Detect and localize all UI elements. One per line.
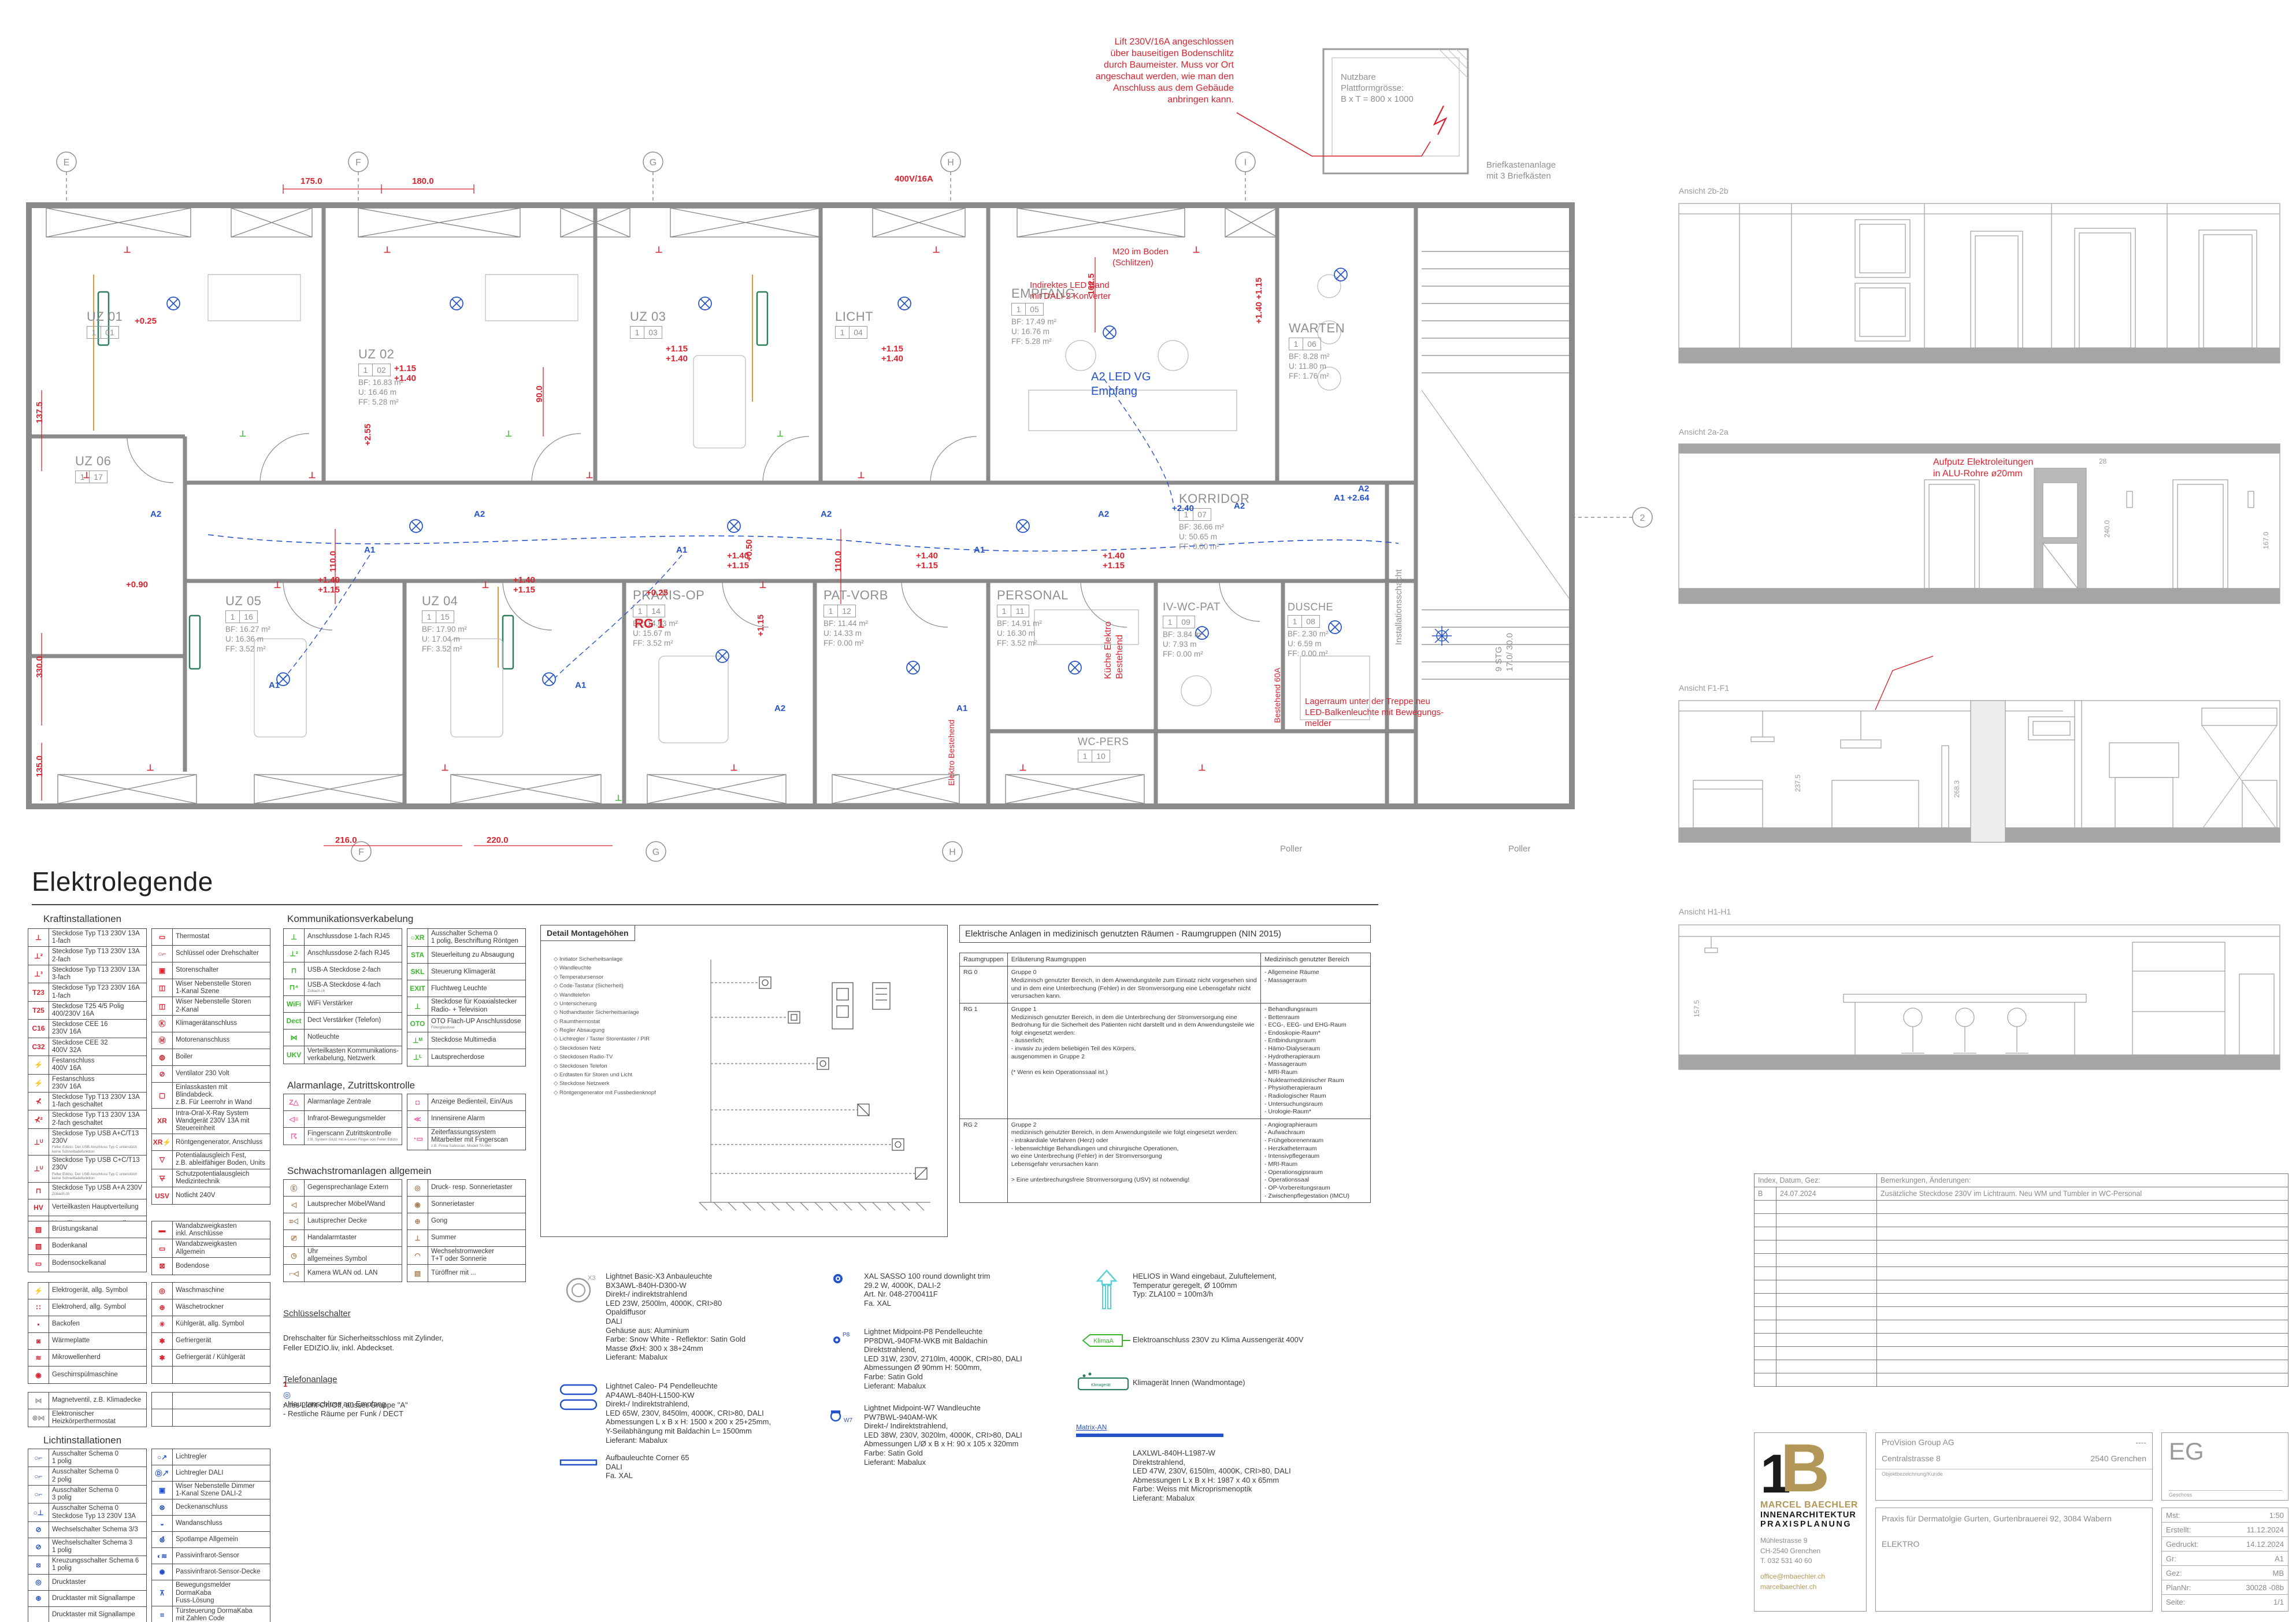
- client-dash: ----: [2135, 1438, 2146, 1447]
- room-label-pat-vorb: PAT-VORB 112 BF: 11.44 m² U: 14.33 m FF:…: [824, 588, 888, 649]
- note-a2-led-vg: A2 LED VG Empfang: [1091, 370, 1151, 399]
- montage-item: ◇ Steckdosen Netz: [554, 1044, 687, 1053]
- symbol-icon: ∷: [28, 1299, 49, 1316]
- symbol-icon: ✳: [152, 1316, 173, 1332]
- index-table: Index, Datum, Gez: Bemerkungen, Änderung…: [1754, 1173, 2288, 1387]
- elevation-label: Ansicht 2a-2a: [1679, 427, 1729, 436]
- plan-pin: +2.40: [1172, 503, 1194, 513]
- legend-row: ⚡Festanschluss 230V 16A: [28, 1075, 146, 1093]
- symbol-icon: ○⌐: [28, 1486, 49, 1503]
- svg-text:⊥: ⊥: [441, 763, 448, 773]
- svg-text:⊥: ⊥: [308, 471, 316, 480]
- room-label-uz03: UZ 03 103: [630, 309, 666, 340]
- legend-row: ⌗◁Lautsprecher Decke: [284, 1213, 402, 1230]
- plan-pin: 137.5: [35, 402, 44, 424]
- plan-pin: Poller: [1280, 844, 1302, 854]
- elevation-f1: [1679, 656, 2280, 842]
- legend-row: ⊥Steckdose Typ T13 230V 13A 1-fach: [28, 929, 146, 947]
- symbol-icon: ◘: [407, 1094, 428, 1110]
- legend-row: ⊗⋈Elektronischer Heizkörperthermostat: [28, 1409, 146, 1427]
- symbol-icon: C32: [28, 1038, 49, 1056]
- legend-row: ⓂMotorenanschluss: [152, 1032, 270, 1049]
- legend-table-alarm-1: Z△Alarmanlage Zentrale◁≡Infrarot-Bewegun…: [283, 1094, 402, 1145]
- symbol-icon: Ⓔ: [284, 1180, 305, 1196]
- legend-row: ◉Geschirrspülmaschine: [28, 1367, 146, 1383]
- symbol-icon: ◫: [152, 997, 173, 1014]
- elevation-2b: [1679, 203, 2280, 363]
- sasso-icon: [831, 1272, 848, 1289]
- symbol-icon: ⊥³: [28, 965, 49, 983]
- legend-row: ▪Backofen: [28, 1316, 146, 1333]
- elevation-h1: [1679, 925, 2280, 1069]
- legend-row: ◐≋Passivinfrarot-Sensor: [152, 1548, 270, 1564]
- legend-row: ⒺGegensprechanlage Extern: [284, 1180, 402, 1197]
- svg-text:⊥: ⊥: [585, 471, 593, 480]
- symbol-icon: ▧: [28, 1238, 49, 1254]
- legend-row: ✳Kühlgerät, allg. Symbol: [152, 1316, 270, 1333]
- legend-row: ⋈Notleuchte: [284, 1030, 402, 1046]
- svg-text:⊥: ⊥: [655, 245, 662, 255]
- symbol-icon: ◫: [152, 979, 173, 997]
- note-bestehend-60a: Bestehend 60A: [1273, 668, 1283, 723]
- architect-address: Mühlestrasse 9 CH-2540 Grenchen T. 032 5…: [1760, 1536, 1860, 1566]
- client-name: ProVision Group AG: [1882, 1438, 1954, 1447]
- symbol-icon: ⊥ᵁ: [28, 1156, 49, 1182]
- svg-text:⊥: ⊥: [777, 429, 784, 438]
- legend-row: C32Steckdose CEE 32 400V 32A: [28, 1038, 146, 1056]
- matrix-an-tag: Matrix-AN: [1076, 1423, 1223, 1437]
- symbol-icon: ◉: [28, 1367, 49, 1383]
- legend-row: [152, 1367, 270, 1383]
- symbol-icon: ▬: [152, 1221, 173, 1239]
- plan-pin: +1.40 +1.15: [1103, 551, 1125, 571]
- plan-pin: +2.55: [363, 424, 373, 446]
- legend-table-geraete-1: ⚡Elektrogerät, allg. Symbol∷Elektroherd,…: [28, 1282, 147, 1384]
- plan-pin: 175.0: [301, 176, 322, 186]
- product-basic-x3: Lightnet Basic-X3 Anbauleuchte BX3AWL-84…: [606, 1272, 834, 1362]
- klimageraet-icon: Klimagerät: [1076, 1371, 1131, 1394]
- note-rg1: RG 1: [635, 616, 664, 632]
- plan-pin: A2: [1098, 509, 1109, 519]
- grid-bubbles: [57, 152, 1652, 861]
- legend-row: ⊠Bodendose: [152, 1258, 270, 1275]
- symbol-icon: ▪: [28, 1316, 49, 1332]
- legend-row: ◎Drucktaster: [28, 1575, 146, 1591]
- montage-item: ◇ Erdtasten für Storen und Licht: [554, 1071, 687, 1079]
- symbol-icon: ▣: [152, 962, 173, 979]
- floor-caption: Geschoss: [2169, 1490, 2282, 1498]
- symbol-icon: ◠: [407, 1247, 428, 1264]
- legend-row: ⊥³Steckdose Typ T13 230V 13A 3-fach: [28, 965, 146, 983]
- plan-pin: +1.15 +1.40: [394, 364, 416, 384]
- svg-text:2: 2: [1640, 513, 1645, 523]
- legend-table-licht-2: ○↗LichtreglerⒹ↗Lichtregler DALI▣Wiser Ne…: [151, 1449, 270, 1622]
- svg-text:167.0: 167.0: [2262, 532, 2270, 549]
- svg-text:⊥: ⊥: [1198, 763, 1206, 773]
- room-label-warten: WARTEN 106 BF: 8.28 m² U: 11.80 m FF: 1.…: [1289, 321, 1345, 382]
- symbol-icon: ○⊥: [28, 1504, 49, 1521]
- legend-row: UKVVerteilkasten Kommunikations- verkabe…: [284, 1046, 402, 1064]
- legend-row: ⊘Wechselschalter Schema 3 1 polig: [28, 1538, 146, 1556]
- plan-pin: Poller: [1508, 844, 1530, 854]
- index-row: [1755, 1201, 2288, 1214]
- symbol-icon: ⋈: [284, 1030, 305, 1046]
- plan-pin: +1.15 +1.40: [881, 344, 903, 364]
- symbol-icon: ⎚: [284, 1230, 305, 1246]
- legend-row: HVVerteilkasten Hauptverteilung: [28, 1199, 146, 1216]
- stairs: [1422, 251, 1569, 679]
- legend-row: Ⓓ↗Lichtregler DALI: [152, 1465, 270, 1482]
- symbol-icon: ✺: [152, 1564, 173, 1580]
- symbol-icon: T25: [28, 1002, 49, 1019]
- legend-row: ⊓Steckdose Typ USB A+A 230VZübach.ch: [28, 1183, 146, 1199]
- plan-pin: A2: [774, 703, 785, 713]
- symbol-icon: HV: [28, 1199, 49, 1216]
- svg-text:⊥: ⊥: [273, 580, 281, 590]
- legend-row: ▭Wandabzweigkasten Allgemein: [152, 1239, 270, 1257]
- floor-box: EG Geschoss: [2161, 1432, 2288, 1501]
- legend-row: [152, 1393, 270, 1409]
- svg-text:F: F: [355, 158, 361, 168]
- project-box: Praxis für Dermatolgie Gurten, Gurtenbra…: [1875, 1508, 2153, 1612]
- symbol-icon: ⊘: [28, 1538, 49, 1556]
- symbol-icon: ⊘: [28, 1522, 49, 1538]
- legend-row: ☈Fingerscann Zutrittskontrollez.B. Syste…: [284, 1128, 402, 1145]
- legend-table-komm-1: ⊥Anschlussdose 1-fach RJ45⊥²Anschlussdos…: [283, 928, 402, 1064]
- symbol-icon: ◍: [152, 1049, 173, 1065]
- symbol-icon: USV: [152, 1187, 173, 1204]
- symbol-icon: Ⓜ: [152, 1032, 173, 1049]
- plan-pin: +0.25: [135, 316, 157, 326]
- legend-row: ⊥ᴹSteckdose Multimedia: [407, 1032, 525, 1049]
- legend-row: ▽Potentialausgleich Fest, z.B. ableitfäh…: [152, 1151, 270, 1169]
- legend-row: ◒Wandanschluss: [152, 1516, 270, 1532]
- plan-pin: A2: [1358, 484, 1369, 494]
- legend-row: ○⌐Ausschalter Schema 0 1 polig: [28, 1449, 146, 1467]
- rg-row: RG 1Gruppe 1 Medizinisch genutzter Berei…: [960, 1003, 1371, 1119]
- index-header: Index, Datum, Gez:: [1755, 1174, 1877, 1187]
- legend-table-kraft-2: ▭Thermostat○⌐Schlüssel oder Drehschalter…: [151, 928, 270, 1205]
- legend-row: ⦻Kreuzungsschalter Schema 6 1 polig: [28, 1556, 146, 1574]
- legend-row: ◠Wechselstromwecker T+T oder Sonnerie: [407, 1247, 525, 1265]
- montage-item: ◇ Temperatursensor: [554, 973, 687, 982]
- legend-row: ▽̶Schutzpotentialausgleich Medizintechni…: [152, 1169, 270, 1187]
- symbol-icon: WiFi: [284, 996, 305, 1012]
- klima-a-tag-icon: KlimaA: [1082, 1333, 1131, 1348]
- client-caption: Objektbezeichnung/Kunde: [1876, 1469, 2152, 1479]
- symbol-icon: ⊥: [407, 997, 428, 1014]
- symbol-icon: ⊗⋈: [28, 1409, 49, 1427]
- symbol-icon: ⊥: [28, 929, 49, 946]
- symbol-icon: ⌗◁: [284, 1213, 305, 1230]
- legend-row: ⚡Elektrogerät, allg. Symbol: [28, 1283, 146, 1299]
- symbol-icon: ◉: [407, 1197, 428, 1213]
- caleo-p4-icon: [559, 1383, 600, 1413]
- plan-info-row: Gez:MB: [2162, 1566, 2288, 1580]
- elevation-h1-dims: 157.5: [1693, 1000, 1701, 1017]
- montage-item: ◇ Steckdose Netzwerk: [554, 1079, 687, 1088]
- legend-row: ⟂Summer: [407, 1230, 525, 1247]
- plan-pin: A2: [1234, 501, 1245, 511]
- symbol-icon: ▨: [28, 1221, 49, 1238]
- svg-text:E: E: [64, 158, 70, 168]
- svg-text:237.5: 237.5: [1794, 775, 1802, 792]
- legend-row: ⊥²Anschlussdose 2-fach RJ45: [284, 946, 402, 962]
- note-schacht: Installationsschacht: [1394, 569, 1405, 645]
- plan-pin: 90.0: [535, 386, 544, 402]
- legend-row: ≋Mikrowellenherd: [28, 1350, 146, 1367]
- plan-pin: 400V/16A: [895, 174, 933, 184]
- montage-item: ◇ Untersicherung: [554, 999, 687, 1008]
- plan-pin: 220.0: [487, 835, 509, 845]
- rg-table: Raumgruppen Erläuterung Raumgruppen Medi…: [959, 953, 1371, 1203]
- product-matrix: LAXLWL-840H-L1987-W Direktstrahlend, LED…: [1133, 1449, 1375, 1503]
- symbol-icon: XR⚡: [152, 1134, 173, 1150]
- index-row: [1755, 1360, 2288, 1373]
- room-label-uz01: UZ 01 101: [87, 309, 123, 340]
- index-row: [1755, 1280, 2288, 1294]
- legend-row: ⊥²Steckdose Typ T13 230V 13A 2-fach: [28, 947, 146, 965]
- rg-header-bereich: Medizinisch genutzter Bereich: [1261, 953, 1371, 966]
- legend-row: ◎Waschmaschine: [152, 1283, 270, 1299]
- brand-line-2: INNENARCHITEKTUR: [1760, 1510, 1860, 1520]
- lift-annex: [1237, 49, 1468, 173]
- rg-table-title: Elektrische Anlagen in medizinisch genut…: [959, 925, 1371, 943]
- plan-pin: A1: [575, 680, 586, 690]
- note-lift: Lift 230V/16A angeschlossen über bauseit…: [982, 36, 1234, 106]
- symbol-icon: ▽: [152, 1151, 173, 1168]
- symbol-icon: ✱: [152, 1333, 173, 1349]
- legend-table-geraete-2: ◎Waschmaschine⊕Wäschetrockner✳Kühlgerät,…: [151, 1282, 270, 1384]
- legend-row: ⊕Gong: [407, 1213, 525, 1230]
- symbol-icon: ⚡: [28, 1283, 49, 1299]
- montage-item: ◇ Initiator Sicherheitsanlage: [554, 955, 687, 964]
- legend-row: ⊛Drucktaster mit Signallampe: [28, 1591, 146, 1607]
- montage-item: ◇ Nothandtaster Sicherheitsanlage: [554, 1008, 687, 1017]
- symbol-icon: ▣: [152, 1482, 173, 1499]
- legend-row: ⊓USB-A Steckdose 2-fach: [284, 962, 402, 979]
- legend-row: ◫Wiser Nebenstelle Storen 1-Kanal Szene: [152, 979, 270, 997]
- client-box: ProVision Group AG ---- Centralstrasse 8…: [1875, 1432, 2153, 1501]
- symbol-icon: ⦻: [28, 1556, 49, 1573]
- symbol-icon: ◁: [284, 1197, 305, 1213]
- symbol-icon: UKV: [284, 1046, 305, 1064]
- rg-row: RG 2Gruppe 2 medizinisch genutzter Berei…: [960, 1119, 1371, 1202]
- symbol-icon: ◙: [28, 1333, 49, 1349]
- symbol-icon: ◁≡: [284, 1111, 305, 1127]
- symbol-icon: ○↗: [152, 1449, 173, 1465]
- symbol-icon: [28, 1607, 49, 1622]
- corner-65-icon: [559, 1457, 600, 1468]
- plan-info-row: Erstellt:11.12.2024: [2162, 1523, 2288, 1537]
- legend-table-hvac-1: ⋈Magnetventil, z.B. Klimadecke⊗⋈Elektron…: [28, 1392, 147, 1427]
- architect-logo-box: 1B MARCEL BAECHLER INNENARCHITEKTUR PRAX…: [1754, 1432, 1867, 1612]
- legend-row: ⊓⁴USB-A Steckdose 4-fachZübach.ch: [284, 979, 402, 996]
- legend-table-kanal-2: ▬Wandabzweigkasten inkl. Anschlüsse▭Wand…: [151, 1221, 270, 1275]
- symbol-icon: ⊥: [284, 929, 305, 945]
- legend-row: ◷Uhr allgemeines Symbol: [284, 1247, 402, 1265]
- legend-row: ◉Sonnerietaster: [407, 1197, 525, 1213]
- product-midpoint-p8: Lightnet Midpoint-P8 Pendelleuchte PP8DW…: [864, 1327, 1095, 1390]
- plan-pin: +0.25: [646, 588, 668, 598]
- svg-text:KlimaA: KlimaA: [1093, 1338, 1114, 1345]
- product-sasso-100: XAL SASSO 100 round downlight trim 29.2 …: [864, 1272, 1095, 1308]
- svg-text:X3: X3: [588, 1275, 595, 1282]
- plan-pin: +1.15 +1.40: [666, 344, 688, 364]
- symbol-icon: ⊓: [28, 1183, 49, 1199]
- plan-pin: A2: [150, 509, 161, 519]
- svg-text:⊥: ⊥: [1019, 763, 1026, 773]
- legend-row: ▬Wandabzweigkasten inkl. Anschlüsse: [152, 1221, 270, 1239]
- svg-text:⊥: ⊥: [146, 763, 154, 773]
- symbol-icon: ▢: [152, 1083, 173, 1108]
- svg-text:⊥: ⊥: [932, 245, 940, 255]
- plan-pin: 110.0: [833, 551, 843, 572]
- legend-row: ⊥Steckdose für Koaxialstecker Radio- + T…: [407, 997, 525, 1015]
- plan-pin: A1: [269, 680, 280, 690]
- legend-row: ◫Wiser Nebenstelle Storen 2-Kanal: [152, 997, 270, 1015]
- room-label-korridor: KORRIDOR 107 BF: 36.66 m² U: 50.65 m FF:…: [1179, 491, 1250, 552]
- legend-row: ≪Innensirene Alarm: [407, 1111, 525, 1128]
- section-kommunikation: Kommunikationsverkabelung: [287, 913, 413, 925]
- legend-row: ⊼Bewegungsmelder DormaKaba Fuss-Lösung: [152, 1580, 270, 1606]
- index-row: [1755, 1373, 2288, 1387]
- symbol-icon: ◎: [407, 1180, 428, 1196]
- legend-row: ○⌐Ausschalter Schema 0 3 polig: [28, 1486, 146, 1504]
- svg-text:Klimagerät: Klimagerät: [1091, 1383, 1111, 1387]
- rg-header-erlaeuterung: Erläuterung Raumgruppen: [1007, 953, 1260, 966]
- legend-row: ⌗Türsteuerung DormaKaba mit Zahlen Code: [152, 1606, 270, 1622]
- legend-row: ○⌐Ausschalter Schema 0 2 polig: [28, 1467, 146, 1485]
- brand-line-3: PRAXISPLANUNG: [1760, 1520, 1860, 1529]
- elevation-2a-dims: 28 240.0 167.0: [2099, 457, 2270, 549]
- symbol-icon: XR: [152, 1109, 173, 1134]
- symbol-icon: ◐≋: [152, 1548, 173, 1564]
- room-label-wc-pers: WC-PERS 110: [1078, 736, 1129, 762]
- plan-pin: +0.90: [126, 580, 148, 590]
- plan-pin: 216.0: [335, 835, 357, 845]
- elevation-f1-dims: 237.5 268.3: [1794, 775, 1961, 798]
- product-klimageraet-innen: Klimagerät Innen (Wandmontage): [1133, 1378, 1375, 1387]
- svg-text:⊥: ⊥: [239, 429, 246, 438]
- plan-pin: A1: [974, 545, 985, 555]
- product-klima-anschluss: Elektroanschluss 230V zu Klima Aussenger…: [1133, 1335, 1375, 1345]
- telefonanlage-title: Telefonanlage: [283, 1374, 403, 1386]
- schluesselschalter-title: Schlüsselschalter: [283, 1308, 443, 1320]
- symbol-icon: ⊀²: [28, 1110, 49, 1128]
- legend-row: ✱Gefriergerät: [152, 1333, 270, 1350]
- symbol-icon: ○⌐: [28, 1467, 49, 1484]
- product-caleo-p4: Lightnet Caleo- P4 Pendelleuchte AP4AWL-…: [606, 1382, 834, 1445]
- legend-row: ⋈Magnetventil, z.B. Klimadecke: [28, 1393, 146, 1409]
- symbol-icon: ⊓: [284, 962, 305, 979]
- symbol-icon: ⊕: [407, 1213, 428, 1230]
- note-kueche-elektro: Küche Elektro Bestehend: [1103, 621, 1126, 679]
- client-city: 2540 Grenchen: [2090, 1454, 2146, 1463]
- elevations: Ansicht 2b-2b Ansicht 2a-2a Ansicht F1-F…: [1670, 168, 2294, 1145]
- plan-pin: A1 +2.64: [1334, 493, 1369, 503]
- svg-text:240.0: 240.0: [2103, 520, 2111, 538]
- note-aufputz: Aufputz Elektroleitungen in ALU-Rohre ø2…: [1933, 457, 2033, 480]
- symbol-icon: ⌐◁: [284, 1265, 305, 1282]
- plan-pin: A1: [956, 703, 967, 713]
- index-row: [1755, 1267, 2288, 1280]
- symbol-icon: ≋: [28, 1350, 49, 1366]
- floor-label: EG: [2162, 1433, 2288, 1465]
- legend-title: Elektrolegende: [32, 866, 213, 897]
- symbol-icon: ⊠: [152, 1258, 173, 1275]
- legend-row: DectDect Verstärker (Telefon): [284, 1013, 402, 1030]
- symbol-icon: ◎: [152, 1283, 173, 1299]
- symbol-icon: ⊥ᴹ: [407, 1032, 428, 1049]
- legend-row: STASteuerleitung zu Absaugung: [407, 947, 525, 964]
- symbol-icon: ◔▭: [407, 1128, 428, 1150]
- index-row: [1755, 1254, 2288, 1267]
- montage-item: ◇ Röntgengenerator mit Fussbedienknopf: [554, 1088, 687, 1097]
- symbol-icon: ▭: [152, 1239, 173, 1257]
- legend-rule: [32, 904, 1378, 905]
- legend-row: ○⊥Ausschalter Schema 0 Steckdose Typ 13 …: [28, 1504, 146, 1521]
- index-row: [1755, 1294, 2288, 1307]
- legend-row: ○↗Lichtregler: [152, 1449, 270, 1465]
- symbol-icon: ⊥ᴸ: [407, 1049, 428, 1066]
- symbol-icon: ⊗: [152, 1499, 173, 1515]
- plan-info-row: Seite:1/1: [2162, 1595, 2288, 1609]
- plan-sheet: E F G H I F G H 2: [0, 0, 2296, 1622]
- legend-table-schwach-1: ⒺGegensprechanlage Extern◁Lautsprecher M…: [283, 1179, 402, 1282]
- symbol-icon: EXIT: [407, 980, 428, 997]
- note-elektro-bestehend: Elektro Bestehend: [947, 720, 957, 786]
- room-label-licht: LICHT 104: [835, 309, 873, 340]
- symbol-icon: ⊛: [28, 1591, 49, 1606]
- section-alarmanlage: Alarmanlage, Zutrittskontrolle: [287, 1080, 415, 1091]
- plan-pin: 135.0: [35, 756, 44, 777]
- legend-row: Z△Alarmanlage Zentrale: [284, 1094, 402, 1111]
- midpoint-w7-icon: W7: [829, 1406, 855, 1424]
- legend-row: ▭Bodensockelkanal: [28, 1255, 146, 1272]
- symbol-icon: [152, 1367, 173, 1383]
- montage-item: ◇ Raumthermostat: [554, 1017, 687, 1026]
- legend-row: T25Steckdose T25 4/5 Polig 400/230V 16A: [28, 1002, 146, 1020]
- symbol-icon: ◷: [284, 1247, 305, 1264]
- plan-info-box: Mst:1:50 Erstellt:11.12.2024 Gedruckt:14…: [2161, 1508, 2288, 1612]
- project-title: Praxis für Dermatolgie Gurten, Gurtenbra…: [1882, 1514, 2146, 1523]
- plan-pin: A1: [676, 545, 687, 555]
- legend-row: ◔▭Zeiterfassungssystem Mitarbeiter mit F…: [407, 1128, 525, 1150]
- matrix-bar-icon: [1076, 1434, 1223, 1437]
- svg-text:⊥: ⊥: [123, 245, 131, 255]
- svg-text:G: G: [650, 158, 656, 168]
- plan-info-row: PlanNr:30028 -08b: [2162, 1580, 2288, 1595]
- legend-row: ⊥ᴸLautsprecherdose: [407, 1049, 525, 1066]
- symbol-icon: Ⓚ: [152, 1016, 173, 1032]
- lamp-symbols: [167, 268, 1452, 686]
- symbol-icon: OTO: [407, 1016, 428, 1032]
- svg-text:G: G: [652, 847, 659, 857]
- symbol-icon: ⊕: [152, 1299, 173, 1316]
- symbol-icon: ⊀: [28, 1093, 49, 1110]
- legend-row: ⓀKlimagerätanschluss: [152, 1016, 270, 1032]
- plan-info-row: Gr:A1: [2162, 1551, 2288, 1566]
- montage-item: ◇ Lichtregler / Taster Storentaster / PI…: [554, 1035, 687, 1043]
- index-row: [1755, 1347, 2288, 1360]
- remarks-header: Bemerkungen, Änderungen:: [1877, 1174, 2288, 1187]
- legend-row: ⊥Anschlussdose 1-fach RJ45: [284, 929, 402, 946]
- index-row: [1755, 1307, 2288, 1320]
- symbol-icon: ◒: [152, 1516, 173, 1531]
- svg-text:268.3: 268.3: [1953, 780, 1961, 798]
- legend-row: ⊀Steckdose Typ T13 230V 13A 1-fach gesch…: [28, 1093, 146, 1110]
